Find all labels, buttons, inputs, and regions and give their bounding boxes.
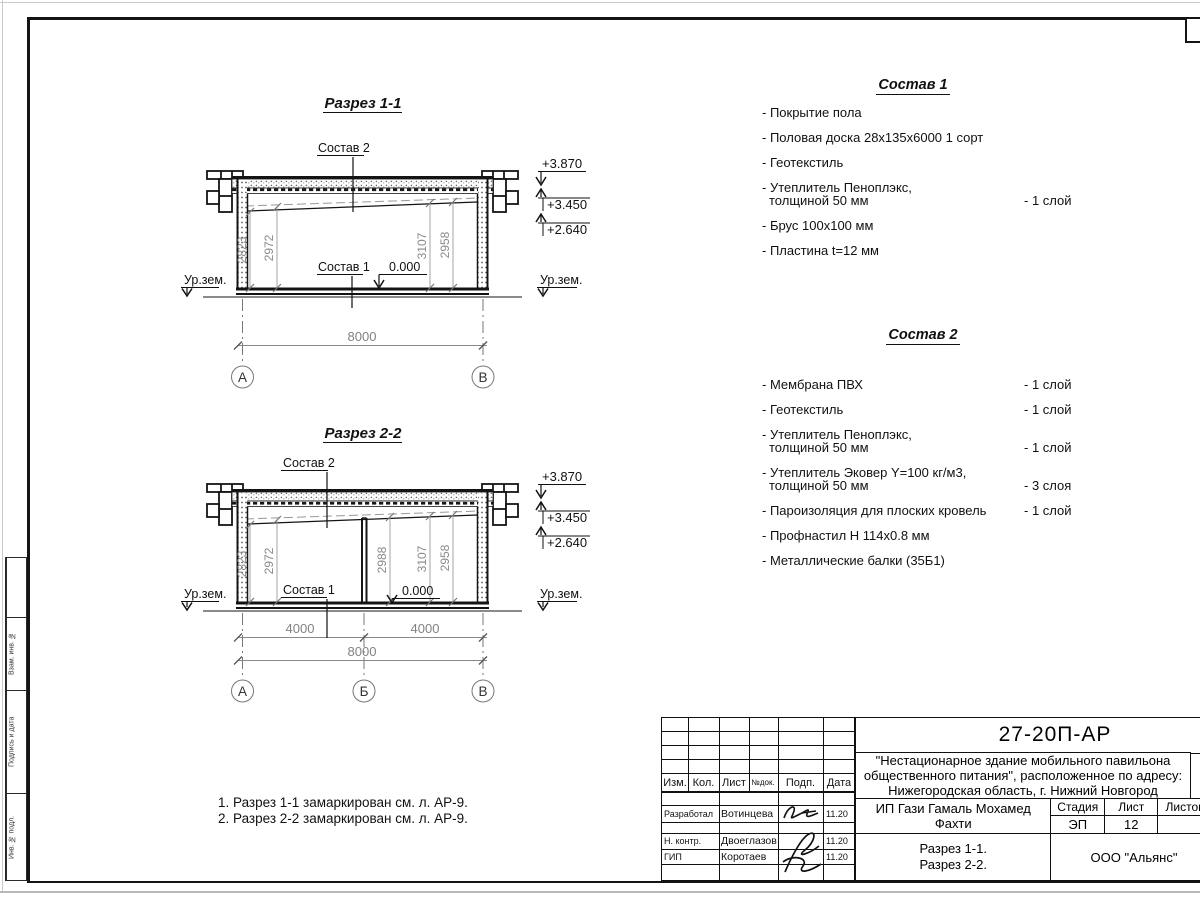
axis-letter: В (478, 370, 487, 385)
roof-assembly (232, 178, 493, 212)
sostav2-list: - Мембрана ПВХ - 1 слой - Геотекстиль - … (762, 378, 1092, 579)
section-1-1: Разрез 1-1 (181, 95, 590, 388)
sostav1-title: Состав 1 (753, 76, 1073, 94)
tb-col-data: Дата (824, 775, 854, 790)
svg-text:+2.640: +2.640 (547, 535, 587, 550)
dim-vertical: 3107 (415, 232, 429, 259)
tb-col-kol: Кол. (689, 775, 718, 790)
svg-text:Ур.зем.: Ур.зем. (184, 273, 226, 287)
list-item: - Пластина t=12 мм (762, 244, 1092, 257)
ground-level-left: Ур.зем. (181, 587, 226, 610)
tb-stage-label: Стадия (1050, 798, 1106, 816)
elevation-marks: +3.870 +3.450 +2.640 (536, 156, 590, 237)
section2-title: Разрез 2-2 (324, 425, 402, 442)
dim-4000-right: 4000 (411, 621, 440, 636)
ground-level-right: Ур.зем. (537, 587, 582, 610)
floor-and-ground (203, 289, 522, 297)
svg-text:Ур.зем.: Ур.зем. (184, 587, 226, 601)
dim-8000: 8000 (348, 329, 377, 344)
dim-8000: 8000 (348, 644, 377, 659)
sostav1-list: - Покрытие пола - Половая доска 28х135х6… (762, 106, 1092, 269)
svg-text:+2.640: +2.640 (547, 222, 587, 237)
dim-vertical: 3107 (415, 545, 429, 572)
tb-col-izm: Изм. (662, 775, 688, 790)
tb-sheet-label: Лист (1104, 798, 1159, 816)
list-item: - Профнастил Н 114х0.8 мм (762, 529, 1092, 542)
list-item: - Мембрана ПВХ - 1 слой (762, 378, 1092, 391)
zero-level-mark: 0.000 (374, 260, 427, 288)
ground-level-right: Ур.зем. (537, 273, 582, 296)
tb-date-1: 11.20 (826, 806, 854, 821)
floor-and-ground (203, 603, 522, 611)
svg-text:Ур.зем.: Ур.зем. (540, 273, 582, 287)
sostav2-title: Состав 2 (763, 326, 1083, 344)
svg-text:+3.450: +3.450 (547, 510, 587, 525)
sostav1-callout: Состав 1 (317, 260, 370, 308)
tb-organization: ООО "Альянс" (1050, 833, 1200, 881)
list-item: - Половая доска 28х135х6000 1 сорт (762, 131, 1092, 144)
list-item: - Металлические балки (35Б1) (762, 554, 1092, 567)
svg-text:0.000: 0.000 (402, 584, 433, 598)
tb-doc-number: 27-20П-АР (855, 717, 1200, 754)
signature-votintseva (780, 801, 822, 823)
section1-title: Разрез 1-1 (324, 95, 401, 112)
dim-vertical: 2972 (262, 234, 276, 261)
axis-letter: Б (360, 684, 369, 699)
svg-text:0.000: 0.000 (389, 260, 420, 274)
tb-sheet-title: Разрез 1-1. Разрез 2-2. (855, 833, 1052, 881)
dim-vertical: 2988 (375, 546, 389, 573)
list-item: - Геотекстиль - 1 слой (762, 403, 1092, 416)
axis-letter: А (238, 370, 247, 385)
section-2-2: Разрез 2-2 (181, 425, 590, 702)
tb-date-2: 11.20 (826, 834, 854, 848)
ground-level-left: Ур.зем. (181, 273, 226, 296)
svg-text:Ур.зем.: Ур.зем. (540, 587, 582, 601)
list-item: - Утеплитель Пеноплэкс,толщиной 50 мм - … (762, 181, 1092, 207)
tb-name-korotaev: Коротаев (721, 850, 778, 864)
dim-vertical: 2972 (262, 547, 276, 574)
dim-vertical: 2823 (235, 550, 249, 577)
list-item: - Геотекстиль (762, 156, 1092, 169)
tb-client: ИП Гази Гамаль Мохамед Фахти (855, 798, 1052, 835)
note-line-2: 2. Разрез 2-2 замаркирован см. л. АР-9. (218, 811, 468, 827)
elevation-marks: +3.870 +3.450 +2.640 (536, 469, 590, 550)
svg-text:+3.450: +3.450 (547, 197, 587, 212)
signature-gip-nkontr (779, 828, 824, 878)
tb-sheet-value: 12 (1104, 815, 1159, 835)
svg-text:Состав 1: Состав 1 (283, 583, 335, 597)
tb-project-name: "Нестационарное здание мобильного павиль… (855, 752, 1191, 800)
tb-sheets-label: Листов (1157, 798, 1200, 816)
dim-vertical: 2958 (438, 544, 452, 571)
dim-vertical: 2958 (438, 231, 452, 258)
list-item: - Пароизоляция для плоских кровель - 1 с… (762, 504, 1092, 517)
tb-name-dvoeglazov: Двоеглазов (721, 834, 778, 848)
tb-col-list: Лист (720, 775, 748, 790)
tb-stage-value: ЭП (1050, 815, 1106, 835)
dim-4000-left: 4000 (286, 621, 315, 636)
dim-vertical: 2823 (235, 236, 249, 263)
axis-letter: В (478, 684, 487, 699)
tb-sheets-value (1157, 815, 1200, 835)
tb-role-gip: ГИП (664, 850, 718, 864)
list-item: - Брус 100х100 мм (762, 219, 1092, 232)
tb-role-razrabotal: Разработал (664, 806, 718, 821)
tb-col-ndok: №док. (749, 775, 777, 790)
list-item: - Утеплитель Эковер Y=100 кг/м3,толщиной… (762, 466, 1092, 492)
svg-text:+3.870: +3.870 (542, 156, 582, 171)
notes: 1. Разрез 1-1 замаркирован см. л. АР-9. … (218, 795, 468, 826)
note-line-1: 1. Разрез 1-1 замаркирован см. л. АР-9. (218, 795, 468, 811)
svg-text:Состав 2: Состав 2 (283, 456, 335, 470)
tb-name-votintseva: Вотинцева (721, 806, 777, 821)
tb-role-nkontr: Н. контр. (664, 834, 718, 848)
tb-date-3: 11.20 (826, 850, 854, 864)
axis-letter: А (238, 684, 247, 699)
svg-text:Состав 1: Состав 1 (318, 260, 370, 274)
tb-col-podp: Подп. (779, 775, 822, 790)
list-item: - Покрытие пола (762, 106, 1092, 119)
svg-text:Состав 2: Состав 2 (318, 141, 370, 155)
drawing-sheet: Взам. инв. № Подпись и дата Инв. № подл. (0, 0, 1200, 900)
svg-text:+3.870: +3.870 (542, 469, 582, 484)
list-item: - Утеплитель Пеноплэкс,толщиной 50 мм - … (762, 428, 1092, 454)
